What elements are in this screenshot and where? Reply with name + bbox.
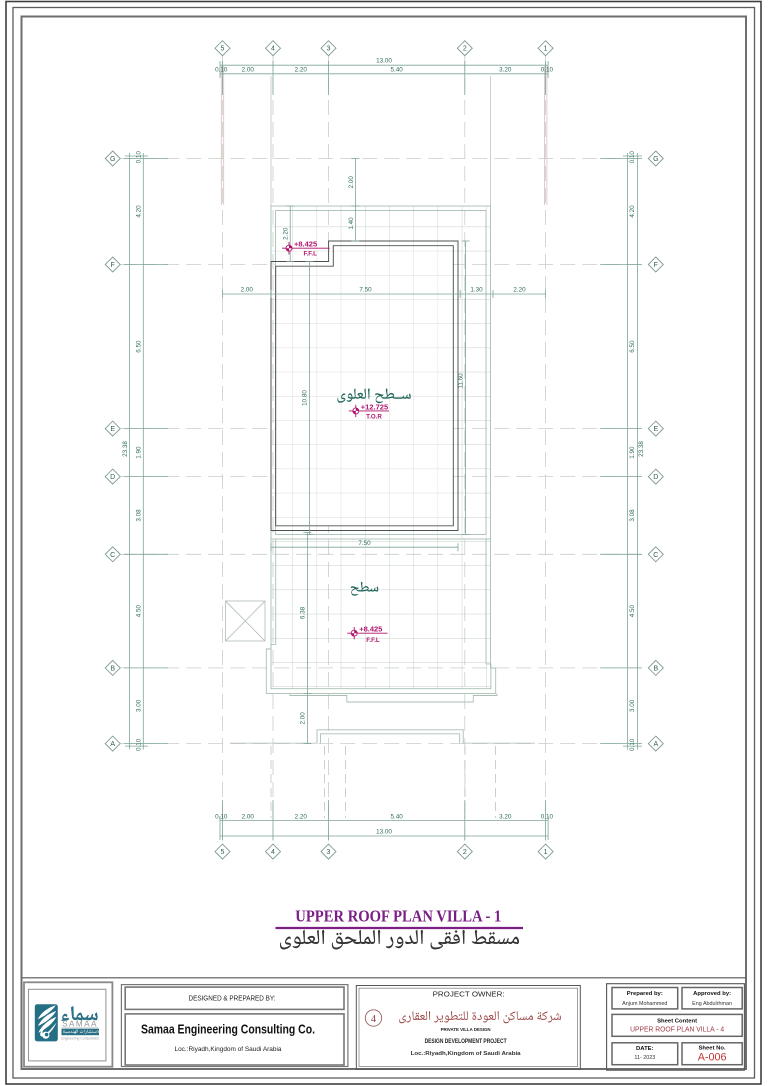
svg-text:11.60: 11.60 <box>458 373 465 389</box>
svg-text:+12.725: +12.725 <box>361 402 388 411</box>
svg-text:4.50: 4.50 <box>136 604 143 617</box>
svg-text:1.90: 1.90 <box>629 446 636 459</box>
svg-text:Sheet Content: Sheet Content <box>657 1019 697 1025</box>
svg-text:3.20: 3.20 <box>499 67 512 74</box>
svg-text:2.00: 2.00 <box>242 813 255 820</box>
svg-text:A-006: A-006 <box>698 1052 727 1064</box>
svg-text:0.10: 0.10 <box>136 151 143 164</box>
svg-text:4: 4 <box>271 46 275 53</box>
svg-text:7.50: 7.50 <box>359 287 372 294</box>
svg-text:23.38: 23.38 <box>638 441 645 457</box>
svg-text:2.20: 2.20 <box>283 227 290 240</box>
svg-text:1.90: 1.90 <box>136 446 143 459</box>
svg-text:3: 3 <box>327 46 331 53</box>
svg-text:1.40: 1.40 <box>348 217 355 230</box>
svg-text:2.20: 2.20 <box>295 67 308 74</box>
svg-text:Engineering Consultation: Engineering Consultation <box>61 1036 99 1040</box>
svg-text:6.38: 6.38 <box>299 606 306 619</box>
svg-text:E: E <box>110 426 115 433</box>
svg-text:Sheet No.: Sheet No. <box>699 1046 727 1052</box>
svg-text:13.00: 13.00 <box>376 58 392 65</box>
svg-text:10.80: 10.80 <box>301 390 308 406</box>
svg-text:2.00: 2.00 <box>299 712 306 725</box>
svg-text:1: 1 <box>544 849 548 856</box>
svg-text:DESIGNED & PREPARED BY:: DESIGNED & PREPARED BY: <box>189 993 276 1002</box>
svg-text:DATE:: DATE: <box>636 1046 654 1052</box>
svg-text:4: 4 <box>271 849 275 856</box>
svg-text:Samaa Engineering Consulting C: Samaa Engineering Consulting Co. <box>141 1022 315 1037</box>
svg-text:0.10: 0.10 <box>541 67 554 74</box>
svg-text:SAMAA: SAMAA <box>62 1019 98 1028</box>
svg-text:3.00: 3.00 <box>629 699 636 712</box>
svg-text:UPPER ROOF PLAN VILLA - 4: UPPER ROOF PLAN VILLA - 4 <box>630 1025 725 1034</box>
svg-text:B: B <box>653 665 658 672</box>
svg-text:2.20: 2.20 <box>513 287 526 294</box>
svg-text:1: 1 <box>544 46 548 53</box>
svg-text:Eng Abdulrhman: Eng Abdulrhman <box>692 1001 732 1007</box>
svg-text:2.00: 2.00 <box>242 67 255 74</box>
svg-text:3.08: 3.08 <box>629 509 636 522</box>
svg-text:PROJECT OWNER:: PROJECT OWNER: <box>433 990 505 999</box>
svg-text:Approved by:: Approved by: <box>693 991 731 997</box>
svg-text:F: F <box>111 262 115 269</box>
svg-text:PRIVATE VILLA DESIGN: PRIVATE VILLA DESIGN <box>441 1027 491 1033</box>
svg-text:5.40: 5.40 <box>390 67 403 74</box>
svg-text:D: D <box>653 474 658 481</box>
svg-text:6.50: 6.50 <box>136 340 143 353</box>
svg-text:2: 2 <box>463 849 467 856</box>
svg-text:Prepared by:: Prepared by: <box>627 991 663 997</box>
svg-text:F.F.L: F.F.L <box>303 250 317 257</box>
svg-text:0.10: 0.10 <box>215 813 228 820</box>
svg-text:2.00: 2.00 <box>241 287 254 294</box>
svg-text:4.50: 4.50 <box>629 604 636 617</box>
svg-text:G: G <box>653 156 658 163</box>
svg-text:B: B <box>110 665 115 672</box>
svg-text:3: 3 <box>327 849 331 856</box>
svg-text:0.10: 0.10 <box>541 813 554 820</box>
svg-text:G: G <box>110 156 115 163</box>
svg-text:UPPER ROOF PLAN VILLA - 1: UPPER ROOF PLAN VILLA - 1 <box>295 906 501 925</box>
svg-text:4.20: 4.20 <box>136 205 143 218</box>
svg-text:+8.425: +8.425 <box>359 625 382 634</box>
svg-text:5: 5 <box>221 849 225 856</box>
svg-text:5: 5 <box>221 46 225 53</box>
svg-text:D: D <box>110 474 115 481</box>
svg-text:2.20: 2.20 <box>295 813 308 820</box>
svg-text:0.10: 0.10 <box>136 738 143 751</box>
svg-text:A: A <box>110 741 115 748</box>
svg-text:0.10: 0.10 <box>215 67 228 74</box>
svg-text:23.38: 23.38 <box>122 441 129 457</box>
svg-text:F.F.L: F.F.L <box>366 637 380 644</box>
svg-text:Anjum Mohammed: Anjum Mohammed <box>622 1001 667 1007</box>
svg-text:2: 2 <box>463 46 467 53</box>
svg-text:0.10: 0.10 <box>629 151 636 164</box>
svg-text:A: A <box>653 741 658 748</box>
svg-text:Loc.:Riyadh,Kingdom of Saudi: Loc.:Riyadh,Kingdom of Saudi Arabia <box>411 1051 522 1057</box>
svg-text:7.50: 7.50 <box>358 540 371 547</box>
svg-text:3.08: 3.08 <box>136 509 143 522</box>
svg-text:6.50: 6.50 <box>629 340 636 353</box>
svg-text:3.20: 3.20 <box>499 813 512 820</box>
svg-text:3.00: 3.00 <box>136 699 143 712</box>
svg-text:11- 2023: 11- 2023 <box>634 1055 655 1061</box>
svg-text:DESIGN DEVELOPMENT PROJECT: DESIGN DEVELOPMENT PROJECT <box>425 1039 507 1045</box>
svg-text:5.40: 5.40 <box>390 813 403 820</box>
svg-text:2.00: 2.00 <box>348 176 355 189</box>
svg-text:Loc.:Riyadh,Kingdom of Saudi A: Loc.:Riyadh,Kingdom of Saudi Arabia <box>175 1046 282 1053</box>
svg-text:13.00: 13.00 <box>376 828 392 835</box>
svg-text:T.O.R: T.O.R <box>366 414 382 421</box>
svg-text:1.30: 1.30 <box>470 287 483 294</box>
svg-text:F: F <box>654 262 658 269</box>
svg-text:C: C <box>653 552 658 559</box>
svg-text:E: E <box>653 426 658 433</box>
svg-text:C: C <box>110 552 115 559</box>
svg-text:4.20: 4.20 <box>629 205 636 218</box>
svg-text:0.10: 0.10 <box>629 738 636 751</box>
svg-text:+8.425: +8.425 <box>294 240 317 249</box>
svg-text:4: 4 <box>371 1014 377 1025</box>
